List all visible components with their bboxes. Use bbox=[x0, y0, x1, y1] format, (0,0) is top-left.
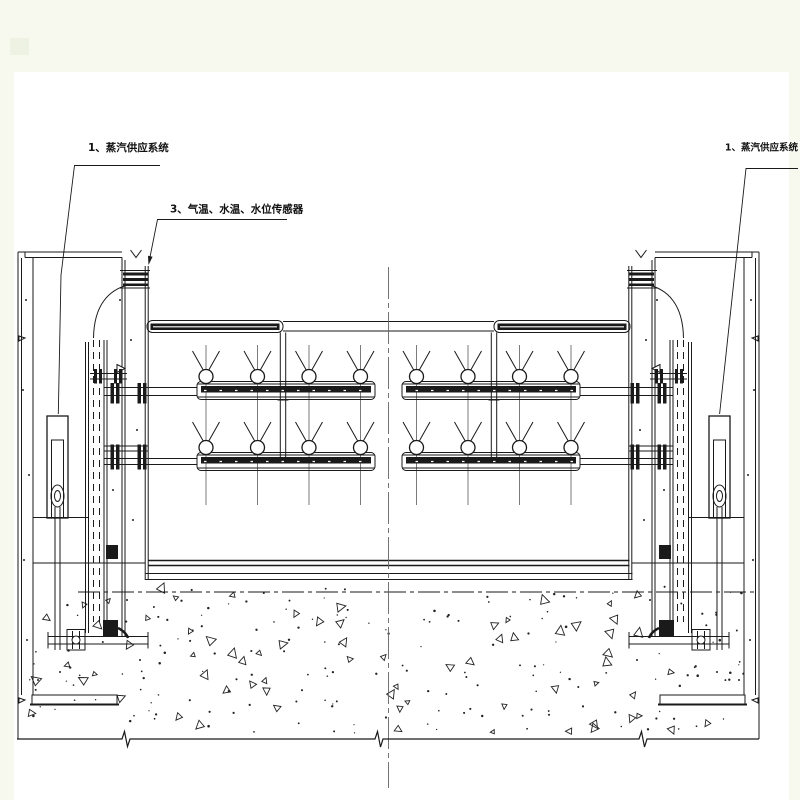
pipe-clamp bbox=[106, 545, 118, 559]
cad-drawing-canvas: 1、蒸汽供应系统 3、气温、水温、水位传感器 1、蒸汽供应系统 bbox=[0, 0, 800, 800]
nozzle-icon bbox=[302, 370, 316, 384]
green-marker bbox=[10, 38, 29, 55]
label-sensors: 3、气温、水温、水位传感器 bbox=[170, 203, 304, 216]
label-steam-supply-left: 1、蒸汽供应系统 bbox=[88, 141, 169, 154]
nozzle-icon bbox=[251, 441, 265, 455]
nozzle-icon bbox=[302, 441, 316, 455]
nozzle-icon bbox=[354, 441, 368, 455]
nozzle-icon bbox=[251, 370, 265, 384]
label-steam-supply-right: 1、蒸汽供应系统 bbox=[725, 142, 799, 154]
nozzle-icon bbox=[354, 370, 368, 384]
nozzle-icon bbox=[199, 441, 213, 455]
gate-steam-system-elevation: 1、蒸汽供应系统 3、气温、水温、水位传感器 1、蒸汽供应系统 bbox=[0, 0, 800, 800]
nozzle-icon bbox=[199, 370, 213, 384]
anchor-block bbox=[103, 620, 118, 637]
